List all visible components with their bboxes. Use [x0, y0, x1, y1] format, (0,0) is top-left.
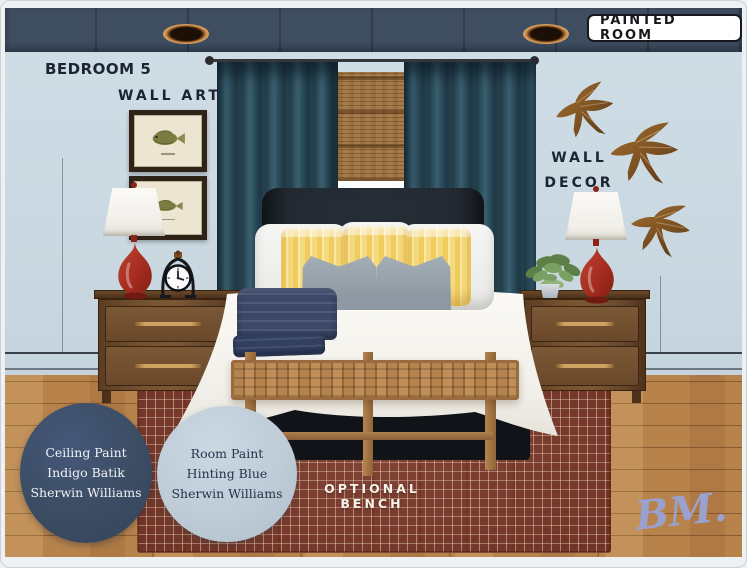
wall-corner-line-left	[62, 158, 63, 352]
red-gourd-lamp-base	[113, 240, 157, 300]
room-paint-swatch: Room Paint Hinting Blue Sherwin Williams	[157, 406, 297, 542]
designer-logo: BM.	[633, 483, 729, 539]
ceiling-paint-swatch: Ceiling Paint Indigo Batik Sherwin Willi…	[20, 403, 152, 543]
room-title: BEDROOM 5	[45, 60, 151, 78]
swatch-line: Indigo Batik	[47, 463, 125, 483]
design-board: BEDROOM 5 WALL ART WALL DECOR PAINTED RO…	[5, 8, 742, 557]
nightstand-leg	[632, 391, 641, 403]
alarm-clock-icon	[158, 250, 198, 298]
bamboo-roman-shade	[332, 72, 414, 181]
fish-icon	[145, 127, 191, 150]
painted-room-badge-label: PAINTED ROOM	[600, 13, 729, 43]
swatch-line: Ceiling Paint	[45, 443, 126, 463]
painted-room-badge: PAINTED ROOM	[587, 14, 742, 42]
swatch-line: Room Paint	[191, 444, 264, 464]
lamp-finial	[593, 186, 599, 192]
swatch-line: Sherwin Williams	[171, 484, 282, 504]
recessed-light-icon	[163, 24, 209, 44]
wall-corner-line-right	[660, 276, 661, 352]
curtain-rod-finial	[205, 56, 214, 65]
navy-folded-blanket	[237, 288, 337, 340]
woven-bench-seat	[231, 360, 519, 400]
swatch-line: Sherwin Williams	[30, 483, 141, 503]
swatch-line: Hinting Blue	[187, 464, 268, 484]
optional-bench-label: OPTIONAL BENCH	[292, 481, 452, 511]
lamp-finial	[131, 182, 137, 188]
framed-fish-print-top	[129, 110, 207, 172]
art-caption-line	[161, 153, 175, 155]
recessed-light-icon	[523, 24, 569, 44]
lamp-shade	[565, 192, 627, 240]
nightstand-leg	[102, 391, 111, 403]
wall-art-label: WALL ART	[118, 88, 221, 104]
swallow-decal-icon	[604, 116, 683, 193]
lamp-shade	[103, 188, 165, 236]
